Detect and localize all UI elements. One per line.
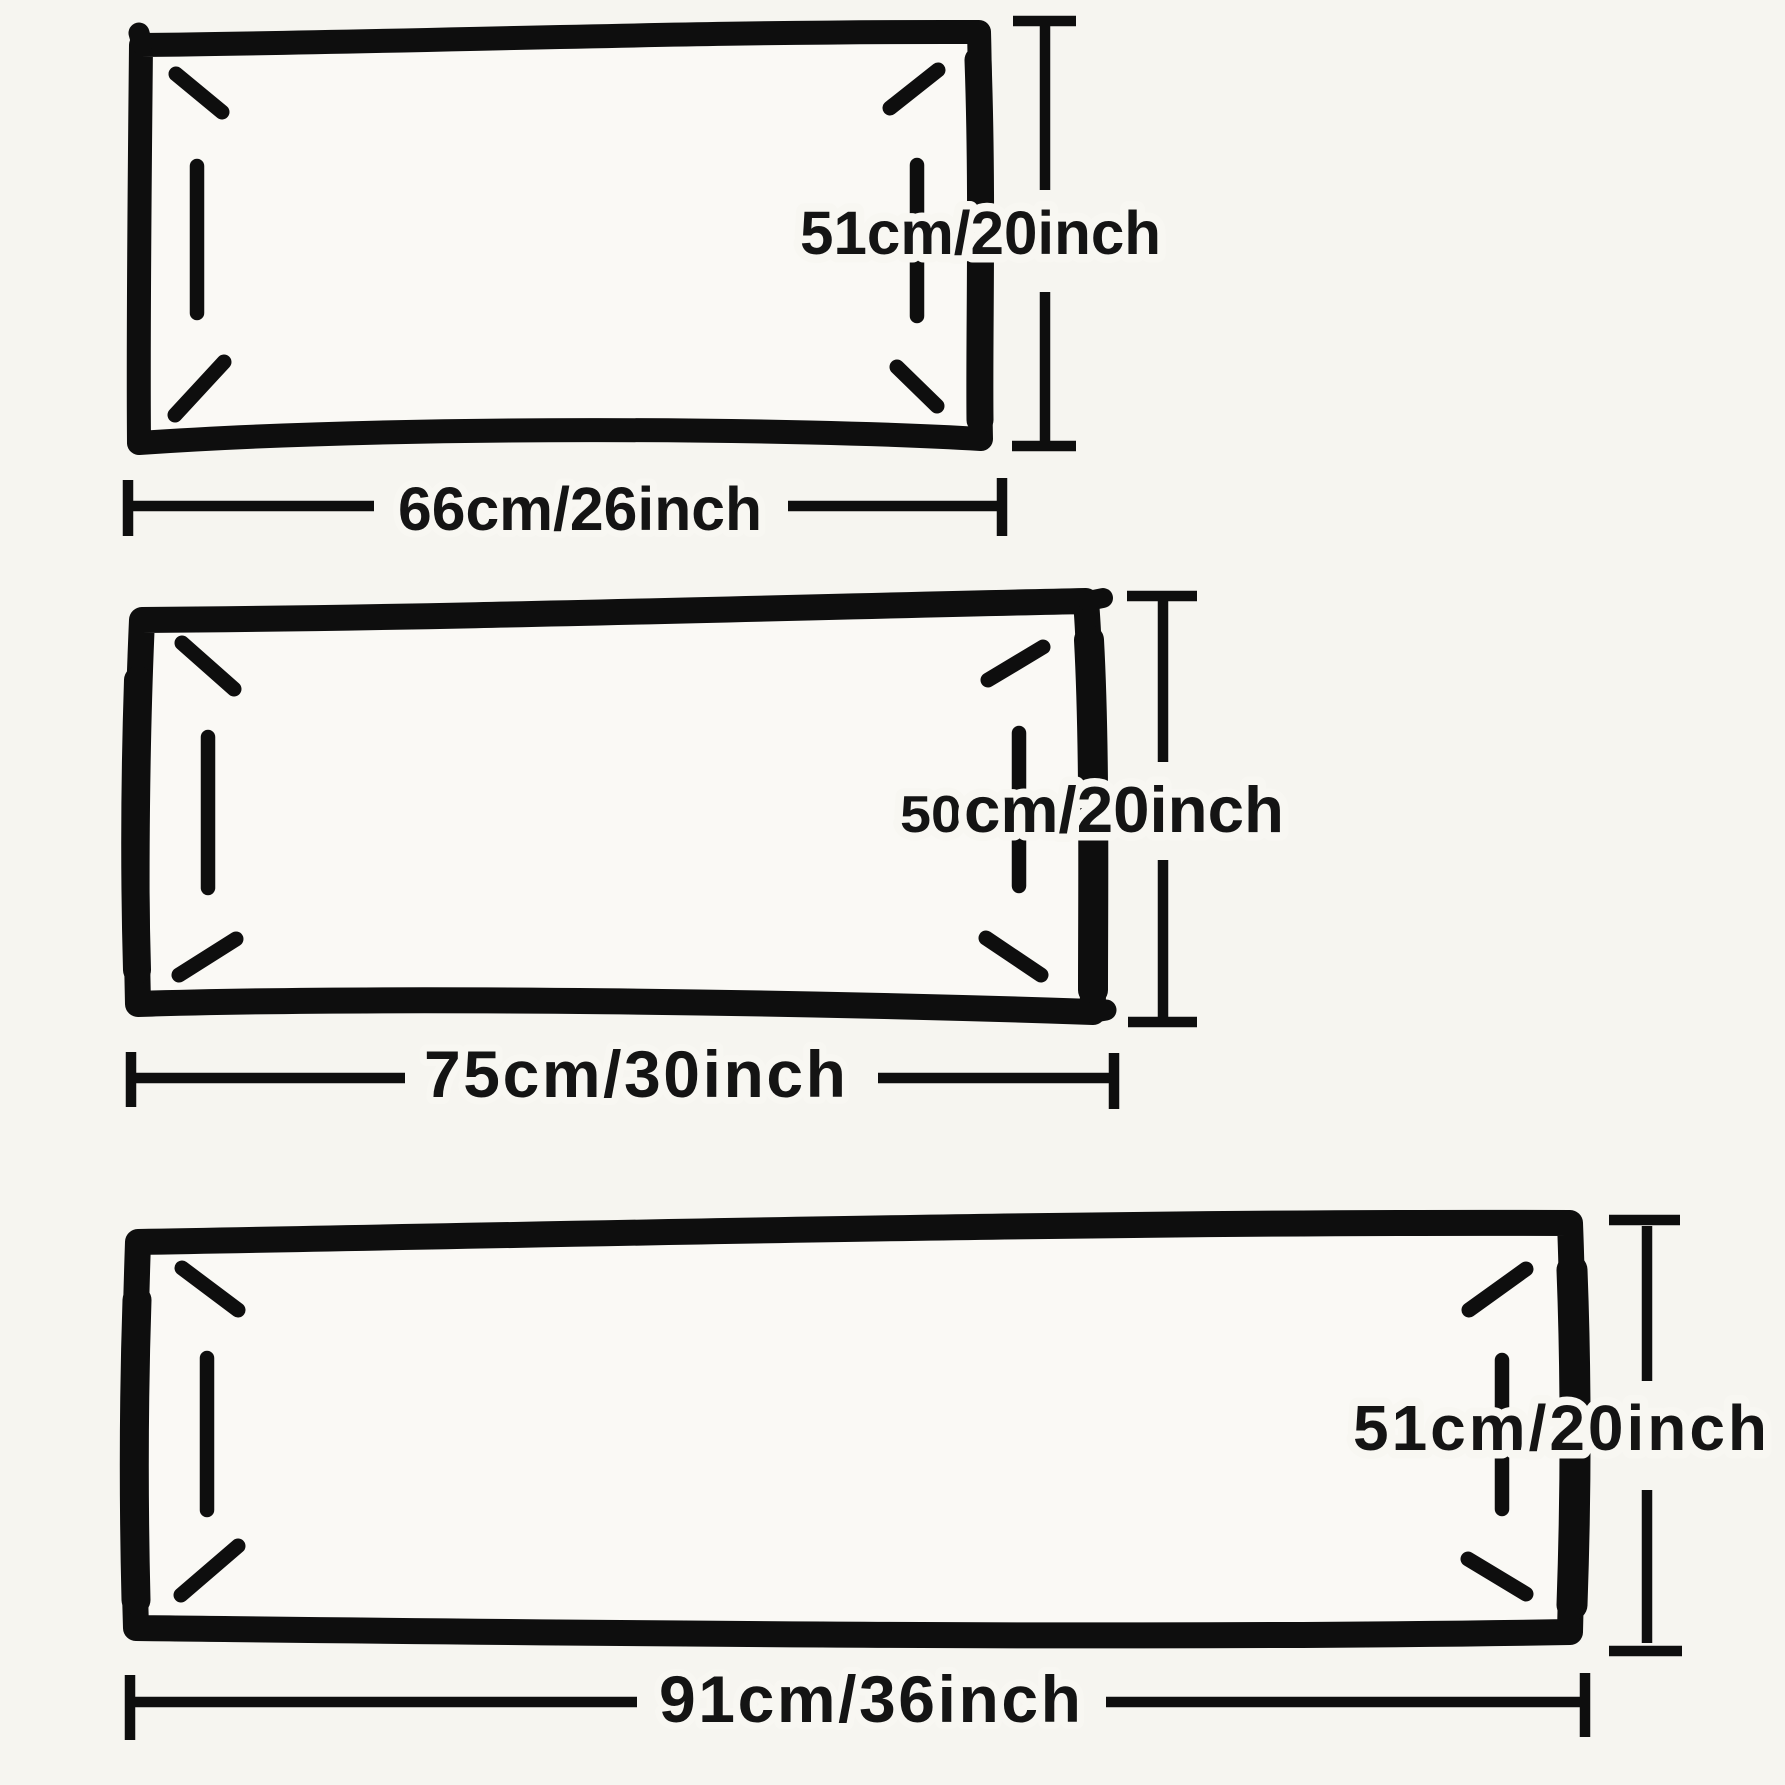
svg-text:51cm/20inch: 51cm/20inch: [1353, 1392, 1767, 1464]
svg-text:cm/20inch: cm/20inch: [964, 773, 1284, 846]
svg-text:75cm/30inch: 75cm/30inch: [424, 1037, 846, 1111]
svg-text:51cm/20inch: 51cm/20inch: [800, 199, 1161, 267]
svg-text:50: 50: [900, 786, 962, 844]
svg-text:66cm/26inch: 66cm/26inch: [398, 475, 762, 543]
svg-text:91cm/36inch: 91cm/36inch: [659, 1662, 1081, 1736]
